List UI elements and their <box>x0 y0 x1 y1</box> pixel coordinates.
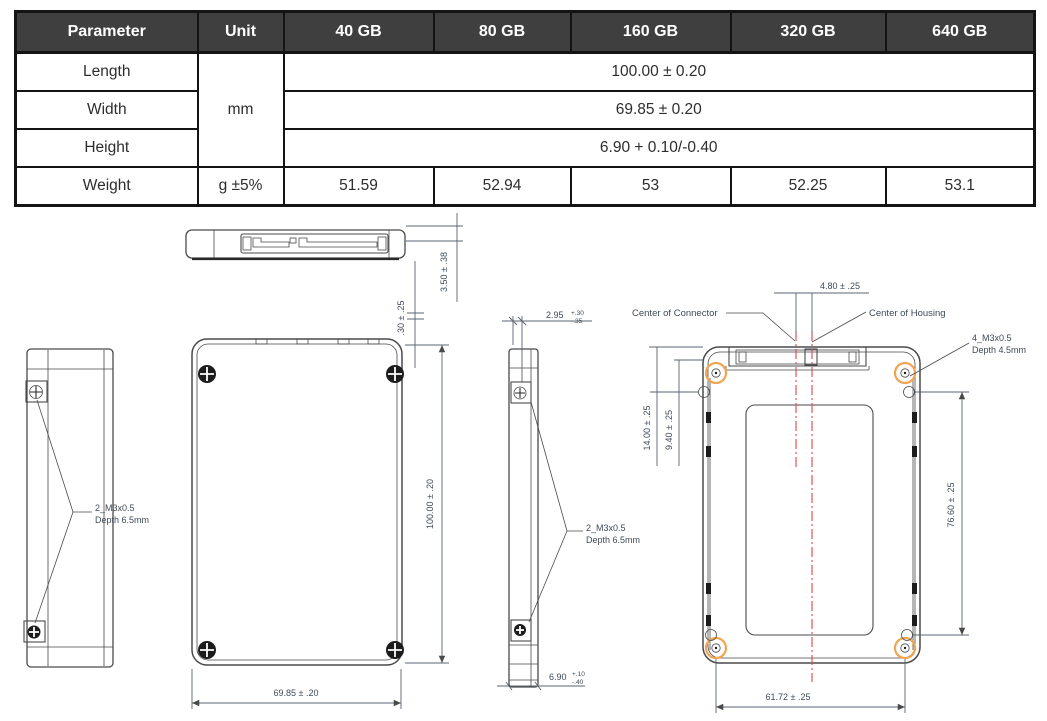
screw-head-icon <box>198 365 216 383</box>
dim-hole-to-edge-text: 9.40 ± .25 <box>664 410 674 450</box>
center-of-connector-leader <box>726 313 795 341</box>
dim-length: 100.00 ± .20 <box>405 345 449 663</box>
dim-height-tol-plus: +.10 <box>572 671 585 678</box>
screw-note-line1: 2_M3x0.5 <box>586 523 626 533</box>
dim-connector-offset-text: 4.80 ± .25 <box>820 281 860 291</box>
screw-note-line2: Depth 4.5mm <box>972 345 1026 355</box>
bottom-view: 4.80 ± .25 Center of Connector Center of… <box>632 281 1026 713</box>
dim-width: 69.85 ± .20 <box>192 669 401 709</box>
screw-head-icon <box>386 365 404 383</box>
dim-connector-height-text: 3.50 ± .38 <box>439 252 449 292</box>
mechanical-drawing: 3.50 ± .38 .30 ± .25 2_M3x0.5 D <box>0 0 1047 721</box>
dim-connector-offset: 4.80 ± .25 <box>774 281 869 333</box>
dim-hole-span-vertical: 76.60 ± .25 <box>913 392 969 635</box>
dim-hole-offset-tol-plus: +.30 <box>571 310 584 317</box>
screw-note-line2: Depth 6.5mm <box>586 535 640 545</box>
dim-hole-to-top-text: 14.00 ± .25 <box>642 406 652 451</box>
front-view: 100.00 ± .20 69.85 ± .20 <box>192 339 449 709</box>
dim-hole-to-top: 14.00 ± .25 9.40 ± .25 <box>642 347 703 466</box>
dim-width-text: 69.85 ± .20 <box>274 688 319 698</box>
center-of-housing-label: Center of Housing <box>869 308 946 319</box>
right-side-view: 2.95 +.30 -.35 2_M3x0.5 Depth 6.5mm 6.90… <box>497 310 640 690</box>
screw-head-icon <box>198 641 216 659</box>
center-of-connector-label: Center of Connector <box>632 308 718 319</box>
dim-hole-span-horizontal-text: 61.72 ± .25 <box>766 692 811 702</box>
dim-height-value: 6.90 <box>549 672 567 682</box>
dim-hole-span-vertical-text: 76.60 ± .25 <box>946 483 956 528</box>
dim-height-tol-minus: -.40 <box>572 679 584 686</box>
left-side-view: 2_M3x0.5 Depth 6.5mm <box>24 349 149 667</box>
dim-length-text: 100.00 ± .20 <box>425 479 435 529</box>
center-of-housing-leader <box>812 312 866 342</box>
dim-cover-gap-text: .30 ± .25 <box>396 301 406 336</box>
datasheet-page: Parameter Unit 40 GB 80 GB 160 GB 320 GB… <box>0 0 1047 721</box>
screw-note-line1: 2_M3x0.5 <box>95 503 135 513</box>
dim-hole-span-horizontal: 61.72 ± .25 <box>716 659 905 713</box>
dim-hole-offset-tol-minus: -.35 <box>571 318 583 325</box>
screw-note-line1: 4_M3x0.5 <box>972 333 1012 343</box>
screw-note-line2: Depth 6.5mm <box>95 515 149 525</box>
dim-hole-offset-value: 2.95 <box>546 310 564 320</box>
screw-head-icon <box>386 641 404 659</box>
